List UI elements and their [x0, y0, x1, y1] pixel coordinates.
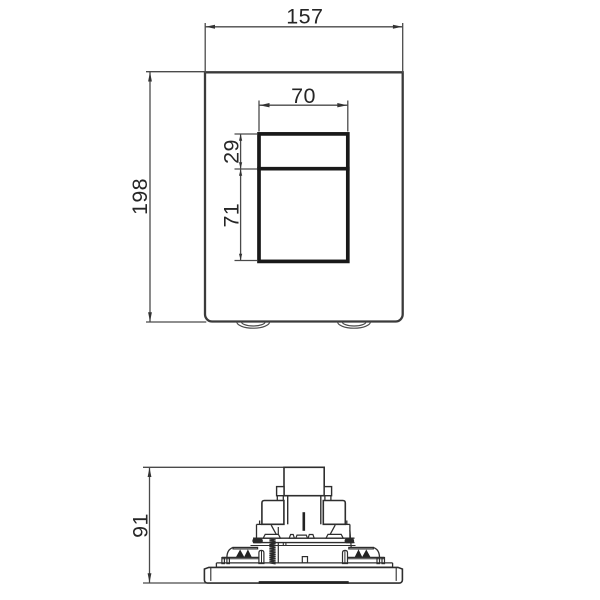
svg-text:29: 29 — [219, 139, 243, 164]
svg-text:91: 91 — [129, 513, 153, 538]
svg-text:198: 198 — [128, 178, 152, 215]
svg-text:70: 70 — [291, 84, 316, 108]
svg-text:71: 71 — [219, 203, 243, 228]
svg-text:157: 157 — [286, 5, 323, 29]
